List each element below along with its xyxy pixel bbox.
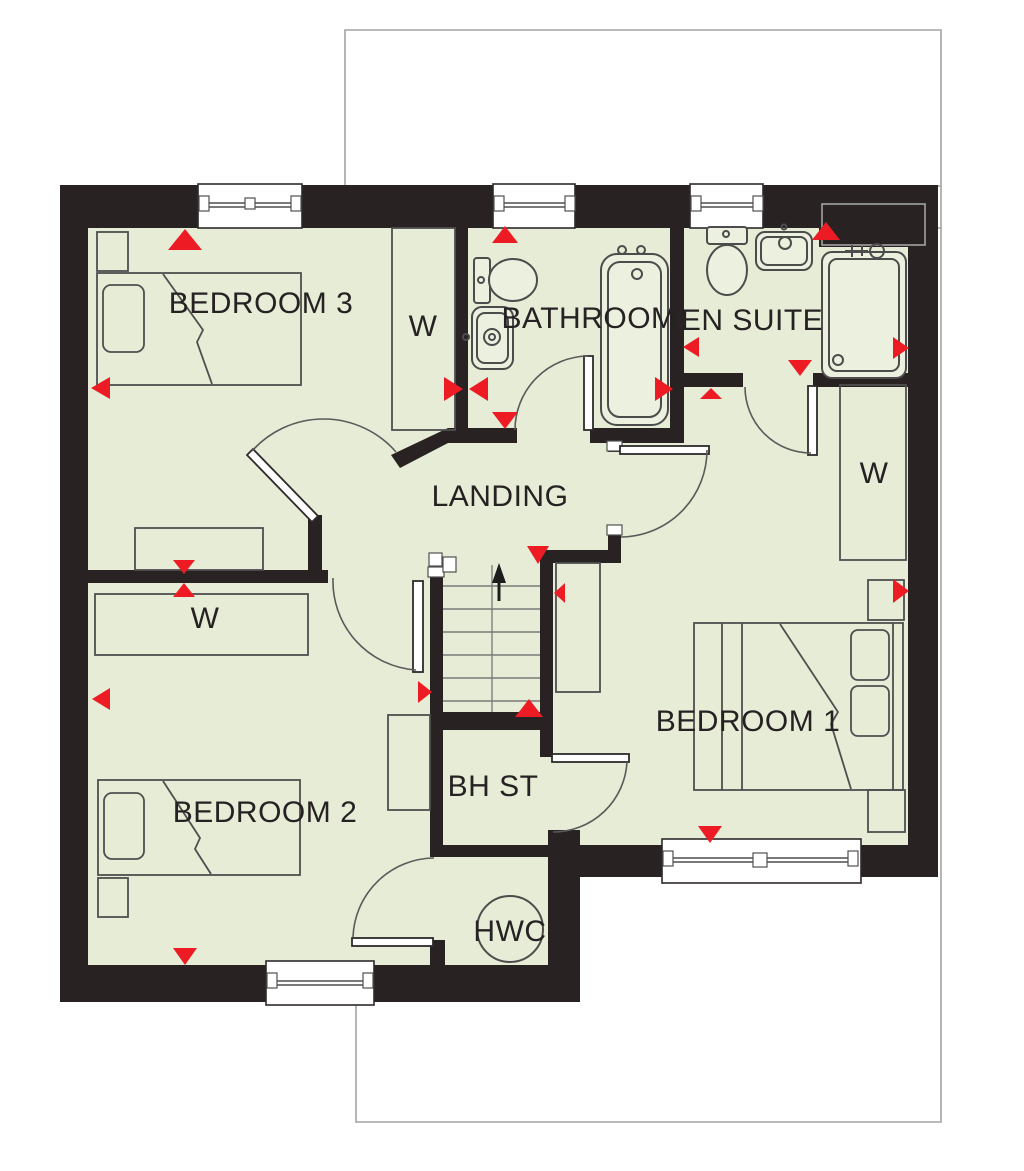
- wall: [540, 550, 621, 563]
- wall: [540, 563, 553, 712]
- sink-ensuite: [756, 225, 812, 271]
- wall: [302, 185, 493, 228]
- wall: [430, 575, 443, 712]
- wall: [88, 570, 328, 583]
- window-bedroom1: [662, 839, 861, 883]
- wall: [455, 228, 468, 432]
- room-label-wardrobe-bedroom1: W: [860, 457, 889, 490]
- toilet-ensuite: [707, 227, 747, 295]
- door-jamb: [428, 567, 444, 577]
- wall: [60, 965, 266, 1002]
- wall: [308, 515, 322, 570]
- window-bathroom: [493, 184, 575, 228]
- floor-plan-page: BEDROOM 3 W BATHROOM EN SUITE LANDING W …: [0, 0, 1024, 1171]
- room-label-bedroom2: BEDROOM 2: [173, 796, 358, 829]
- wall: [448, 428, 517, 443]
- room-label-wardrobe-top: W: [409, 310, 438, 343]
- toilet-bathroom: [474, 258, 537, 303]
- room-label-bedroom1: BEDROOM 1: [656, 705, 841, 738]
- wall: [540, 730, 553, 757]
- wall: [590, 428, 684, 443]
- wall: [580, 845, 662, 877]
- room-label-landing: LANDING: [432, 480, 569, 513]
- room-label-wardrobe-bedroom2: W: [191, 602, 220, 635]
- wall: [684, 373, 743, 387]
- door-jamb: [607, 525, 622, 535]
- newel-post: [429, 553, 442, 566]
- floor-plan-drawing: BEDROOM 3 W BATHROOM EN SUITE LANDING W …: [0, 0, 1024, 1171]
- wall: [443, 845, 553, 857]
- window-ensuite: [690, 184, 763, 228]
- wall: [763, 185, 819, 228]
- room-label-hwc: HWC: [473, 915, 546, 948]
- wall: [908, 185, 938, 877]
- wall: [861, 845, 938, 877]
- room-label-ensuite: EN SUITE: [681, 304, 823, 337]
- room-label-bedroom3: BEDROOM 3: [169, 287, 354, 320]
- window-bedroom3: [198, 184, 302, 228]
- window-bedroom2: [266, 961, 374, 1005]
- newel-post: [443, 557, 456, 572]
- room-label-bathroom: BATHROOM: [501, 302, 676, 335]
- wall: [430, 730, 443, 857]
- room-label-bhst: BH ST: [448, 770, 539, 803]
- wall: [60, 185, 88, 1002]
